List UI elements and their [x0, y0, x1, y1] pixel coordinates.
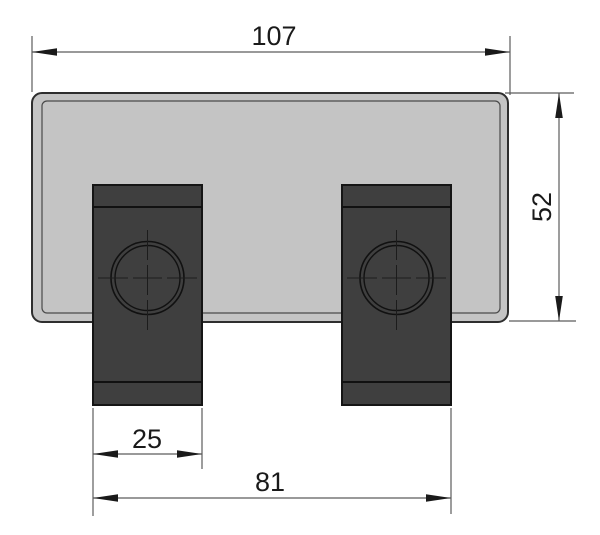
technical-drawing-canvas: 107 52 25 81 — [0, 0, 600, 535]
dim-label-overall-height: 52 — [527, 192, 557, 222]
clamp-block-right — [342, 185, 451, 405]
arrowhead-52-top — [555, 93, 563, 118]
dim-label-overall-width: 107 — [251, 21, 296, 51]
arrowhead-107-left — [32, 48, 57, 56]
arrowhead-81-right — [426, 494, 451, 502]
arrowhead-81-left — [93, 494, 118, 502]
clamp-block-left — [93, 185, 202, 405]
dim-label-block-width: 25 — [132, 424, 162, 454]
arrowhead-107-right — [485, 48, 510, 56]
arrowhead-52-bottom — [555, 296, 563, 321]
drawing-svg: 107 52 25 81 — [0, 0, 600, 535]
arrowhead-25-right — [177, 450, 202, 458]
arrowhead-25-left — [93, 450, 118, 458]
dim-label-block-span: 81 — [255, 467, 285, 497]
